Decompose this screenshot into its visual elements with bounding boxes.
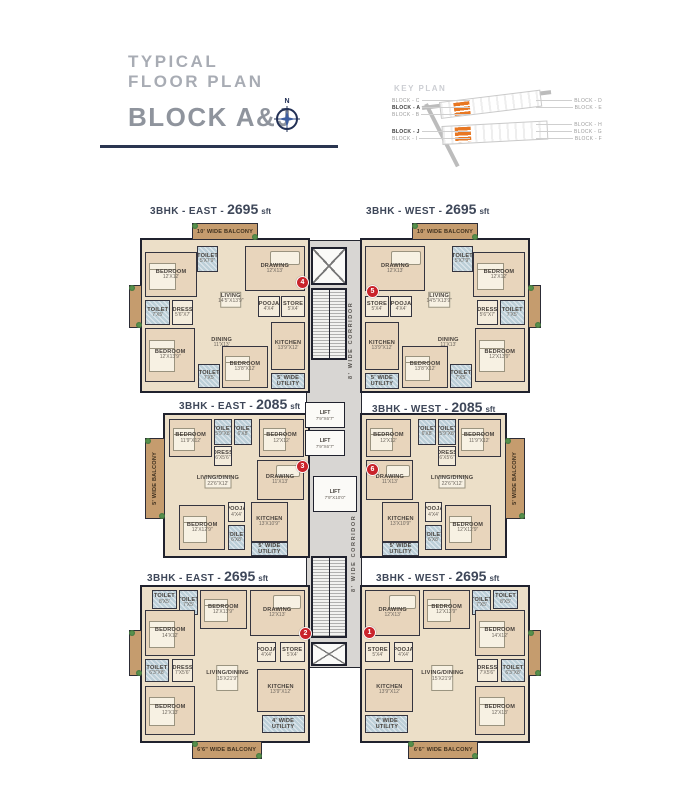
unit-area-unit: sft [489,574,499,583]
room-dims: 14'X12' [492,634,508,640]
room-pooja: POOJA4'X4' [390,296,412,317]
key-plan-block-label: BLOCK - I [392,135,470,142]
unit-area-unit: sft [485,405,495,414]
unit-area-unit: sft [479,207,489,216]
room-dims: 12'X13' [385,613,401,619]
room-dims: 4'X4' [231,513,242,519]
room-dims: 13'9"X12' [270,690,291,696]
room-dims: 14'X12' [162,634,178,640]
page-title-line2: FLOOR PLAN [128,72,264,92]
balcony-strip [129,630,142,676]
room-dims: 5'6"X7' [480,313,495,319]
room-dims: 12'X13'9" [160,355,181,361]
unit-title-east-mid: 3BHK - EAST -2085sft [179,396,300,412]
room-5-wide-utility: 5' WIDE UTILITY [382,542,419,556]
unit-area-value: 2695 [227,201,258,217]
key-plan-block-label-text: BLOCK - J [392,129,420,135]
key-plan-right-labels: BLOCK - DBLOCK - EBLOCK - HBLOCK - GBLOC… [536,97,602,142]
room-5-wide-utility: 5' WIDE UTILITY [365,373,398,390]
unit-title-west-bottom: 3BHK - WEST -2695sft [376,568,499,584]
room-dims: 12'X13' [269,613,285,619]
title-underline [100,145,338,148]
room-dims: 4'X4' [398,653,409,659]
room-toilet: TOILET7'X5' [500,300,525,324]
key-plan-label-group: BLOCK - CBLOCK - ABLOCK - B [392,97,470,118]
room-dims: 6'3"X8' [149,671,164,677]
unit-west-top: 10' WIDE BALCONYBEDROOM12'X12'TOILET5'X7… [360,238,530,393]
room-dims: 22'6"X12' [207,482,228,488]
key-plan-label-group: BLOCK - DBLOCK - E [536,97,602,111]
room-kitchen: KITCHEN13'9"X12' [365,322,398,370]
key-plan-block-label-text: BLOCK - A [392,105,420,111]
room-living: LIVING14'5"X13'9" [413,275,464,323]
room-label: 4' WIDE UTILITY [263,718,304,730]
room-dims: 6'X8' [231,538,242,544]
room-dims: 13'9"X12' [379,690,400,696]
entrance-marker-1: 1 [363,626,376,639]
key-plan-block-label-text: BLOCK - C [392,98,420,104]
room-label: 5' WIDE BALCONY [512,452,518,505]
room-living-dining: LIVING/DINING15'X21'9" [202,636,253,716]
room-dims: 12'X12'9" [457,528,478,534]
room-pooja: POOJA4'X4' [228,502,245,522]
room-dims: 4'X4' [428,513,439,519]
lift-dims: 7'9"X10'0" [325,495,346,500]
room-dress: DRESS5'6"X7' [172,300,194,324]
unit-east-mid: 5' WIDE BALCONYBEDROOM11'9"X12'TOILET5'9… [163,413,310,558]
room-dims: 5'X4' [288,307,299,313]
room-bedroom: BEDROOM11'9"X12' [458,419,501,457]
room-living-dining: LIVING/DINING22'6"X12' [419,463,485,500]
room-6-6-wide-balcony: 6'6" WIDE BALCONY [192,741,262,759]
room-bedroom: BEDROOM14'X12' [145,610,195,656]
room-label: 5' WIDE BALCONY [152,452,158,505]
lift-shaft [311,247,347,285]
unit-type-label: 3BHK - WEST - [372,404,448,415]
room-dims: 12'X12' [380,439,396,445]
room-label: 4' WIDE UTILITY [366,718,407,730]
room-bedroom: BEDROOM12'X12' [366,419,410,457]
room-dims: 12'X13' [162,711,178,717]
room-dims: 13'X10'9" [259,522,280,528]
room-dims: 5'X4' [372,307,383,313]
room-dims: 7'X5' [152,313,163,319]
unit-area-value: 2085 [256,396,287,412]
room-dims: 5'X7'9" [455,259,470,265]
room-dims: 14'5"X13'9" [218,299,243,305]
unit-area-value: 2695 [445,201,476,217]
compass-north-label: N [272,98,302,105]
key-plan-block-label-text: BLOCK - B [392,112,419,118]
room-dims: 12'X13' [387,269,403,275]
room-label: 6'6" WIDE BALCONY [414,747,473,753]
room-living-dining: LIVING/DINING15'X21'9" [417,636,468,716]
room-dims: 12'X13'9" [213,610,234,616]
room-label: 10' WIDE BALCONY [197,229,253,235]
room-dims: 12'X13' [492,711,508,717]
room-label: 5' WIDE UTILITY [272,375,303,387]
key-plan-label-group: BLOCK - HBLOCK - GBLOCK - F [536,121,602,142]
room-dims: 12'X12' [491,275,507,281]
room-bedroom: BEDROOM11'9"X12' [169,419,212,457]
room-bedroom: BEDROOM12'X13' [475,686,525,735]
room-dims: 7'X5' [183,603,194,609]
room-kitchen: KITCHEN13'9"X12' [257,669,305,712]
room-dims: 5'X7'9" [200,259,215,265]
room-dims: 13'9"X12' [278,346,299,352]
room-kitchen: KITCHEN13'X10'9" [382,502,419,541]
room-dims: 11'9"X12' [469,439,490,445]
room-bedroom: BEDROOM12'X12'9" [445,505,491,550]
unit-east-bottom: TOILET8'X5'TOILET7'X5'BEDROOM14'X12'BEDR… [140,585,310,743]
entrance-marker-2: 2 [299,627,312,640]
room-label: 5' WIDE UTILITY [383,543,418,555]
room-dims: 5'X4' [287,653,298,659]
room-living-dining: LIVING/DINING22'6"X12' [185,463,251,500]
room-living: LIVING14'5"X13'9" [205,275,256,323]
key-plan-title: KEY PLAN [394,84,446,93]
room-5-wide-balcony: 5' WIDE BALCONY [145,438,165,520]
room-toilet: TOILET8'X5' [493,590,518,608]
room-kitchen: KITCHEN13'9"X12' [271,322,304,370]
unit-type-label: 3BHK - EAST - [150,206,224,217]
room-dims: 7'X5' [507,313,518,319]
unit-west-mid: 5' WIDE BALCONYBEDROOM11'9"X12'TOILET5'9… [360,413,507,558]
key-plan-block-label-text: BLOCK - I [392,136,417,142]
room-label: 10' WIDE BALCONY [417,229,473,235]
room-toilet: TOILET6'X8' [425,525,442,550]
unit-title-west-mid: 3BHK - WEST -2085sft [372,399,495,415]
lift-shaft [311,642,347,666]
room-drawing: DRAWING12'X13' [250,590,305,636]
room-dims: 5'9"X8' [439,432,454,438]
room-dims: 8'X5' [500,600,511,606]
room-dims: 15'X21'9" [432,677,453,683]
room-dims: 6'X8' [428,538,439,544]
entrance-marker-6: 6 [366,463,379,476]
room-dims: 6'X8' [238,432,249,438]
room-dims: 12'X12' [273,439,289,445]
room-dims: 5'6"X7' [175,313,190,319]
key-plan-block-label: BLOCK - E [536,104,602,111]
room-toilet: TOILET5'9"X8' [214,419,233,444]
room-bedroom: BEDROOM12'X12' [473,252,524,297]
room-pooja: POOJA4'X4' [258,296,280,317]
unit-west-bottom: TOILET8'X5'TOILET7'X5'BEDROOM14'X12'BEDR… [360,585,530,743]
room-store: STORE5'X4' [365,296,388,317]
room-bedroom: BEDROOM12'X13'9" [423,590,469,629]
room-dims: 6'X5'6" [439,456,454,462]
room-dims: 11'X13' [382,480,398,486]
unit-title-east-top: 3BHK - EAST -2695sft [150,201,271,217]
room-bedroom: BEDROOM13'8"X12' [222,346,268,388]
room-bedroom: BEDROOM13'8"X12' [402,346,448,388]
room-bedroom: BEDROOM14'X12' [475,610,525,656]
room-pooja: POOJA4'X4' [425,502,442,522]
room-pooja: POOJA4'X4' [394,642,414,662]
room-dims: 13'8"X12' [234,367,255,373]
room-4-wide-utility: 4' WIDE UTILITY [365,715,408,733]
key-plan-label-group: BLOCK - JBLOCK - I [392,128,470,142]
key-plan-block-label: BLOCK - F [536,135,602,142]
lift-room: LIFT7'9"X6'7" [305,430,345,456]
room-dims: 12'X13'9" [436,610,457,616]
block-title: BLOCK A&J [128,102,292,133]
room-bedroom: BEDROOM12'X12' [259,419,303,457]
key-plan-block-label-text: BLOCK - G [574,129,602,135]
room-pooja: POOJA4'X4' [257,642,277,662]
staircase [311,288,347,360]
corridor-width-label: 8' WIDE CORRIDOR [348,505,360,601]
room-store: STORE5'X4' [281,296,304,317]
room-dims: 5'9"X8' [215,432,230,438]
room-dims: 13'8"X12' [415,367,436,373]
balcony-strip [528,630,541,676]
key-plan-block-label-text: BLOCK - H [574,122,602,128]
room-label: 6'6" WIDE BALCONY [197,747,256,753]
room-dress: DRESS7'X5'6" [477,659,499,682]
key-plan-block-label-text: BLOCK - D [574,98,602,104]
room-6-6-wide-balcony: 6'6" WIDE BALCONY [408,741,478,759]
room-dims: 4'X4' [261,653,272,659]
room-dims: 6'3"X8' [505,671,520,677]
room-dims: 14'5"X13'9" [426,299,451,305]
room-dress: DRESS5'6"X7' [477,300,499,324]
room-dims: 11'X13' [272,480,288,486]
room-toilet: TOILET6'3"X8' [145,659,168,682]
room-dims: 5'X4' [372,653,383,659]
lift-room: LIFT7'9"X6'7" [305,402,345,428]
entrance-marker-4: 4 [296,276,309,289]
room-dims: 4'X4' [264,307,275,313]
unit-type-label: 3BHK - EAST - [179,401,253,412]
room-dress: DRESS7'X5'6" [172,659,194,682]
floor-plan-canvas: TYPICAL FLOOR PLAN BLOCK A&J N KEY PLAN … [0,0,700,800]
room-store: STORE5'X4' [365,642,390,662]
room-bedroom: BEDROOM12'X13' [145,686,195,735]
room-dims: 8'X5' [159,600,170,606]
room-5-wide-utility: 5' WIDE UTILITY [271,373,304,390]
compass-icon: N [272,98,302,138]
key-plan-block-label: BLOCK - A [392,104,470,111]
room-store: STORE5'X4' [280,642,305,662]
room-label: 5' WIDE UTILITY [366,375,397,387]
entrance-marker-5: 5 [366,285,379,298]
room-toilet: TOILET5'9"X8' [438,419,457,444]
room-toilet: TOILET6'X8' [228,525,245,550]
room-dims: 22'6"X12' [442,482,463,488]
unit-area-value: 2695 [455,568,486,584]
unit-type-label: 3BHK - EAST - [147,573,221,584]
room-10-wide-balcony: 10' WIDE BALCONY [412,223,478,240]
room-dims: 15'X21'9" [217,677,238,683]
unit-east-top: 10' WIDE BALCONYBEDROOM12'X12'TOILET5'X7… [140,238,310,393]
room-10-wide-balcony: 10' WIDE BALCONY [192,223,258,240]
unit-title-east-bottom: 3BHK - EAST -2695sft [147,568,268,584]
key-plan-block-label: BLOCK - G [536,128,602,135]
room-toilet: TOILET5'X7'9" [197,246,219,272]
unit-type-label: 3BHK - WEST - [366,206,442,217]
unit-area-unit: sft [261,207,271,216]
room-dims: 4'X4' [396,307,407,313]
room-dims: 12'X12' [163,275,179,281]
page-title-line1: TYPICAL [128,52,218,72]
entrance-marker-3: 3 [296,460,309,473]
key-plan-block-label: BLOCK - D [536,97,602,104]
room-label: 5' WIDE UTILITY [252,543,287,555]
room-bedroom: BEDROOM12'X12'9" [179,505,225,550]
key-plan-block-label: BLOCK - J [392,128,470,135]
room-toilet: TOILET5'X7'9" [452,246,474,272]
unit-area-unit: sft [290,402,300,411]
room-dims: 7'X5' [204,376,215,382]
corridor-width-label: 8' WIDE CORRIDOR [345,292,357,388]
room-bedroom: BEDROOM12'X13'9" [200,590,246,629]
unit-area-value: 2085 [451,399,482,415]
unit-title-west-top: 3BHK - WEST -2695sft [366,201,489,217]
room-toilet: TOILET6'X8' [234,419,253,444]
unit-area-unit: sft [258,574,268,583]
room-dims: 7'X5' [455,376,466,382]
room-kitchen: KITCHEN13'X10'9" [251,502,288,541]
staircase [311,556,347,638]
room-dims: 6'X8' [422,432,433,438]
balcony-strip [129,285,142,327]
room-5-wide-utility: 5' WIDE UTILITY [251,542,288,556]
compass-rose-icon [274,106,300,132]
balcony-strip [528,285,541,327]
room-dims: 13'X10'9" [390,522,411,528]
key-plan-block-label: BLOCK - H [536,121,602,128]
key-plan-left-labels: BLOCK - CBLOCK - ABLOCK - BBLOCK - JBLOC… [392,97,470,142]
room-toilet: TOILET6'3"X8' [501,659,524,682]
unit-area-value: 2695 [224,568,255,584]
room-toilet: TOILET7'X5' [145,300,170,324]
lift-dims: 7'9"X6'7" [316,444,334,449]
room-bedroom: BEDROOM12'X13'9" [475,328,525,382]
key-plan-block-label: BLOCK - C [392,97,470,104]
room-dims: 13'9"X12' [371,346,392,352]
key-plan-block-label-text: BLOCK - F [575,136,602,142]
room-dims: 12'X13'9" [489,355,510,361]
room-dims: 7'X5'6" [480,671,495,677]
key-plan-block-label-text: BLOCK - E [575,105,602,111]
room-4-wide-utility: 4' WIDE UTILITY [262,715,305,733]
key-plan: KEY PLAN BLOCK - CBLOCK - ABLOCK - BBLOC… [392,84,602,168]
room-dims: 11'9"X12' [180,439,201,445]
room-dims: 7'X5'6" [175,671,190,677]
room-toilet: TOILET6'X8' [418,419,437,444]
room-5-wide-balcony: 5' WIDE BALCONY [505,438,525,520]
key-plan-block-label: BLOCK - B [392,111,470,118]
room-toilet: TOILET7'X5' [198,364,220,388]
room-bedroom: BEDROOM12'X12' [145,252,196,297]
room-toilet: TOILET7'X5' [450,364,472,388]
room-toilet: TOILET8'X5' [152,590,177,608]
room-kitchen: KITCHEN13'9"X12' [365,669,413,712]
unit-type-label: 3BHK - WEST - [376,573,452,584]
room-dims: 12'X13' [267,269,283,275]
room-dims: 6'X5'6" [215,456,230,462]
room-dims: 7'X5' [476,603,487,609]
lift-dims: 7'9"X6'7" [316,416,334,421]
room-bedroom: BEDROOM12'X13'9" [145,328,195,382]
room-dims: 12'X12'9" [192,528,213,534]
